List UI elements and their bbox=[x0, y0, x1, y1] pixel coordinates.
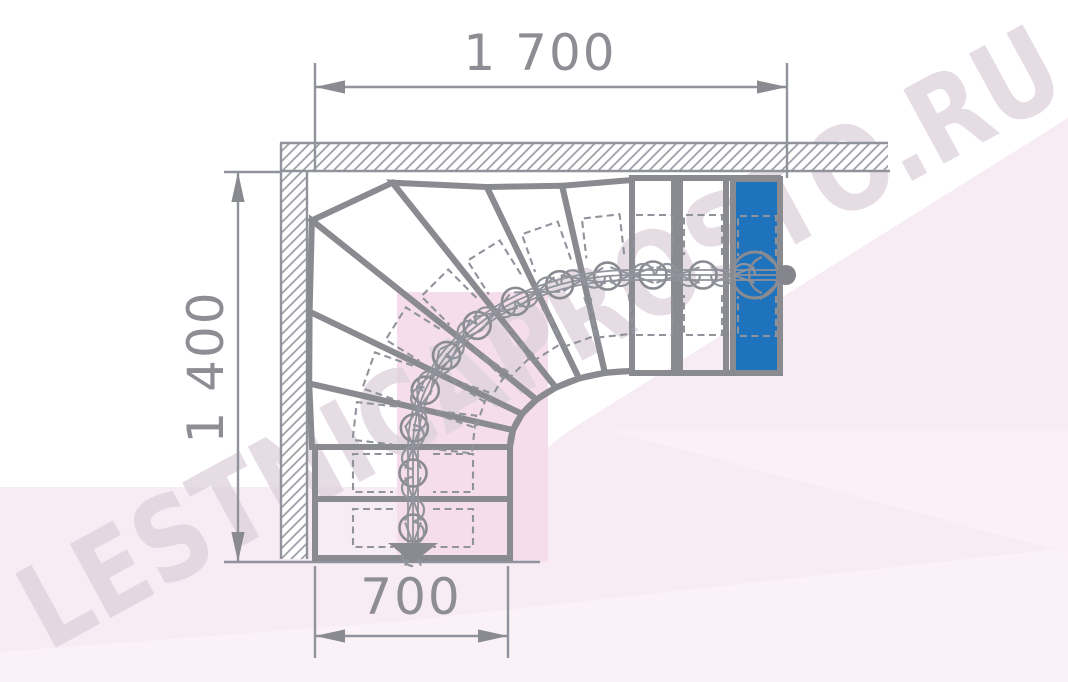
dimension-bottom-label: 700 bbox=[360, 568, 461, 626]
stair-plan-screenshot: LESTNICAPROSTO.RU 1 700 1 400 700 bbox=[0, 0, 1068, 682]
top-wall-hatch bbox=[280, 143, 888, 171]
left-wall-hatch bbox=[280, 143, 307, 559]
arrow-up-icon bbox=[231, 172, 244, 202]
arrow-right-icon bbox=[757, 80, 787, 93]
stair-plan-drawing: LESTNICAPROSTO.RU 1 700 1 400 700 bbox=[0, 0, 1068, 682]
arrow-left-icon bbox=[315, 80, 345, 93]
dimension-left-label: 1 400 bbox=[177, 290, 235, 443]
end-point-dot bbox=[776, 265, 796, 285]
dimension-top-label: 1 700 bbox=[463, 24, 616, 82]
tread-highlighted-landing bbox=[733, 179, 780, 373]
